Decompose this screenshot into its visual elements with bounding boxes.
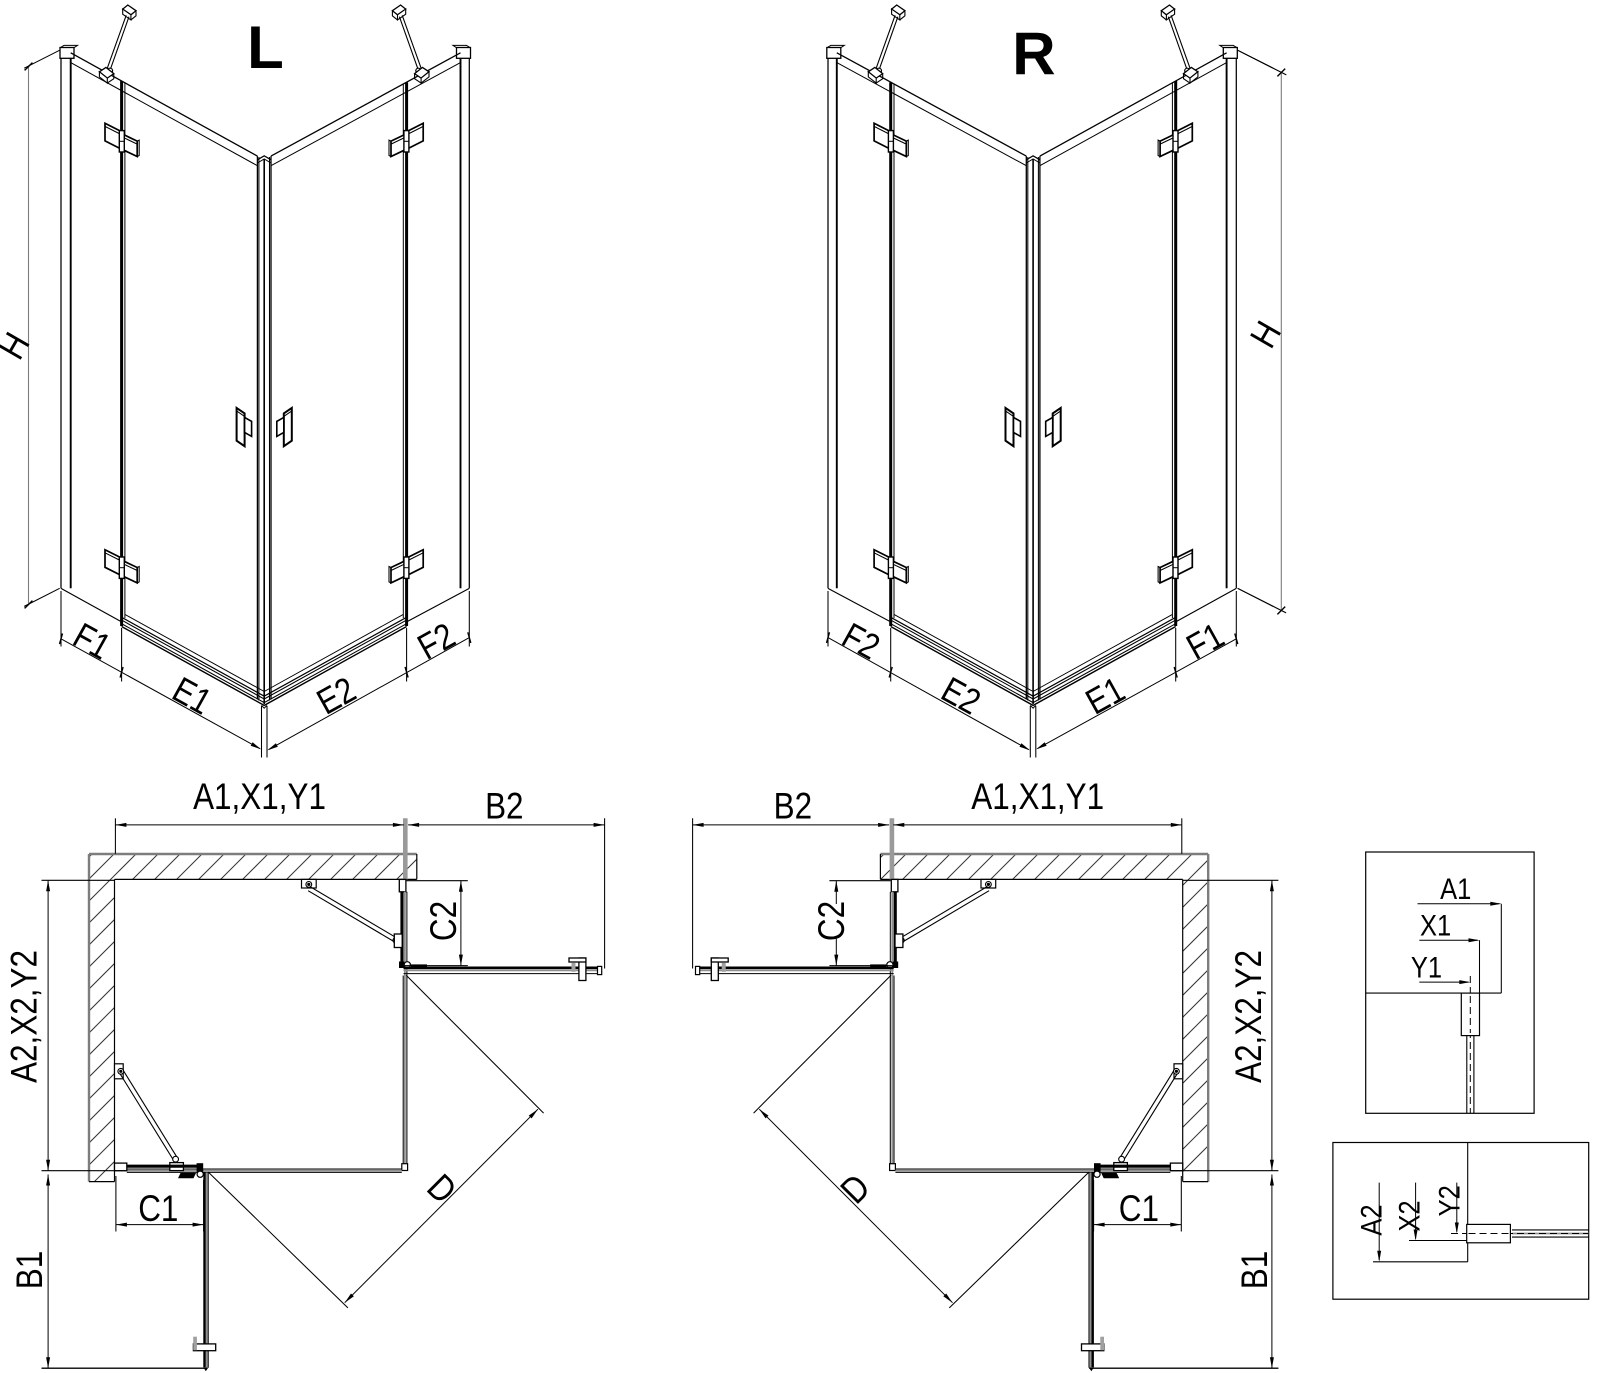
svg-text:R: R (1012, 21, 1055, 88)
svg-text:C1: C1 (138, 1189, 178, 1230)
svg-text:Y1: Y1 (1411, 951, 1442, 984)
svg-text:A1,X1,Y1: A1,X1,Y1 (971, 777, 1104, 818)
svg-text:B2: B2 (774, 786, 812, 827)
svg-text:C2: C2 (811, 901, 852, 941)
svg-text:B1: B1 (10, 1251, 51, 1289)
svg-text:X2: X2 (1392, 1200, 1425, 1231)
svg-text:B1: B1 (1235, 1251, 1276, 1289)
svg-text:B2: B2 (485, 786, 523, 827)
svg-text:A2,X2,Y2: A2,X2,Y2 (1229, 950, 1270, 1083)
svg-text:A2,X2,Y2: A2,X2,Y2 (4, 950, 45, 1083)
svg-text:X1: X1 (1420, 909, 1451, 942)
svg-text:Y2: Y2 (1432, 1185, 1465, 1216)
svg-text:A1,X1,Y1: A1,X1,Y1 (193, 777, 326, 818)
svg-text:A2: A2 (1355, 1204, 1388, 1235)
svg-text:C1: C1 (1119, 1189, 1159, 1230)
svg-text:A1: A1 (1440, 872, 1471, 905)
svg-text:C2: C2 (424, 901, 465, 941)
svg-text:L: L (247, 14, 284, 81)
